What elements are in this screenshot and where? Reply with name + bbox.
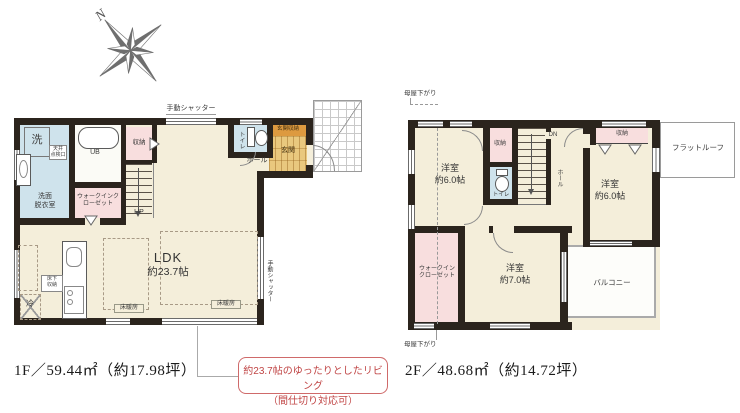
callout-line2: （間仕切り対応可）: [239, 392, 387, 407]
window: [602, 121, 646, 127]
sink-bowl-icon: [19, 160, 28, 178]
wall-segment: [306, 165, 313, 178]
room-s-label: 洋室: [494, 263, 536, 273]
wall-segment: [306, 118, 313, 145]
window: [162, 318, 257, 325]
living-callout-box: 約23.7帖のゆったりとしたリビング （間仕切り対応可）: [238, 357, 388, 394]
toilet-bowl-icon: [495, 176, 509, 192]
floor2-area-text: 2F／48.68㎡（約14.72坪）: [405, 359, 587, 380]
callout-line1: 約23.7帖のゆったりとしたリビング: [239, 362, 387, 392]
toilet-bowl-icon: [255, 130, 268, 146]
underfloor-storage-label: 収納: [42, 283, 62, 289]
flat-roof-label: フラットルーフ: [664, 144, 732, 152]
wall-segment: [652, 120, 660, 247]
window: [166, 118, 216, 125]
window: [590, 241, 632, 246]
stair-bottom-line: [518, 204, 546, 205]
window: [561, 252, 567, 302]
opening-mark-icon: [84, 215, 98, 227]
storage-label: 収納: [489, 141, 511, 148]
wall-segment: [489, 226, 493, 233]
stairs-down-label: DN: [545, 132, 561, 139]
window: [450, 121, 472, 127]
shutter-leader-line: [166, 114, 216, 115]
washroom-label: 脱衣室: [29, 202, 61, 210]
entrance-label: 玄関: [276, 147, 300, 155]
room-s-size: 約7.0帖: [487, 275, 543, 285]
floorplan-page: N: [0, 0, 740, 413]
wall-segment: [69, 125, 75, 218]
wall-segment: [488, 199, 514, 205]
entrance-storage-label: 玄関収納: [269, 126, 307, 132]
room-nw-size: 約6.0帖: [423, 175, 477, 185]
washroom-label: 洗面: [29, 193, 61, 201]
walk-in-closet-label: ウォークインクローゼット: [77, 194, 119, 207]
walk-in-closet-label: ウォークインクローゼット: [417, 266, 457, 279]
window: [490, 323, 530, 329]
shutter-label: 手動シャッター: [263, 252, 272, 310]
opening-mark-icon: [149, 137, 161, 151]
fridge-label: 冷: [22, 300, 38, 309]
window: [240, 119, 262, 125]
wall-segment: [257, 171, 313, 178]
wall-segment: [488, 162, 514, 167]
toilet-tank-icon: [496, 169, 508, 176]
shutter-label: 手動シャッター: [158, 105, 224, 113]
storage-label: 収納: [611, 131, 633, 138]
stair-direction-line: [138, 168, 139, 212]
cupboard-space: [18, 245, 38, 291]
wall-segment: [75, 182, 121, 188]
storage-label: 収納: [128, 139, 150, 146]
room-nw-label: 洋室: [430, 163, 470, 173]
window: [408, 205, 415, 229]
balcony-railing: [654, 247, 656, 318]
wall-segment: [458, 233, 465, 322]
opening-mark-icon: [598, 144, 612, 156]
window: [652, 148, 660, 172]
kitchen-sink-icon: [66, 247, 82, 267]
compass-rose-icon: N: [83, 3, 178, 98]
sloped-ceiling-line: [437, 128, 438, 324]
unit-bath-label: UB: [80, 149, 110, 157]
wall-segment: [14, 118, 313, 125]
wall-segment: [100, 218, 126, 225]
floor1-area-text: 1F／59.44㎡（約17.98坪）: [14, 359, 196, 380]
balcony-label: バルコニー: [589, 279, 635, 287]
stairs-up-label: UP: [124, 209, 154, 217]
floor-heating-label: 床暖房: [114, 304, 144, 313]
room-ne-size: 約6.0帖: [583, 191, 637, 201]
balcony-railing: [568, 245, 583, 247]
bathtub-icon: [78, 127, 119, 149]
stair-direction-line: [531, 134, 532, 190]
room-ne-label: 洋室: [590, 179, 630, 189]
window: [418, 121, 443, 127]
balcony-railing: [568, 316, 656, 318]
wall-segment: [546, 128, 551, 205]
burner-icon: [67, 290, 73, 296]
hall-label: ホール: [553, 163, 562, 193]
callout-connector: [197, 326, 198, 377]
wall-segment: [228, 125, 234, 152]
toilet-tank-icon: [247, 127, 255, 147]
sloped-ceiling-label: 母屋下がり: [404, 341, 444, 348]
sloped-ceiling-tick: [436, 330, 437, 340]
stair-arrow: [528, 189, 534, 195]
sloped-ceiling-tick: [410, 104, 438, 105]
floor-heating-label: 床暖房: [211, 300, 241, 309]
toilet-label: トイレ: [235, 127, 244, 153]
ldk-size-label: 約23.7帖: [128, 267, 208, 279]
window: [106, 318, 130, 325]
wall-segment: [583, 128, 590, 134]
inspection-label: 点検口: [50, 153, 66, 159]
callout-connector: [198, 376, 238, 377]
toilet-label: トイレ: [491, 192, 511, 198]
hall-label: ホール: [243, 157, 271, 165]
window: [414, 323, 434, 329]
ldk-label: LDK: [133, 251, 203, 266]
washer-label: 洗: [25, 134, 49, 146]
opening-mark-icon: [628, 144, 642, 156]
burner-icon: [67, 299, 73, 305]
sloped-ceiling-label: 母屋下がり: [404, 90, 444, 97]
wall-segment: [14, 218, 85, 225]
window: [408, 150, 415, 174]
